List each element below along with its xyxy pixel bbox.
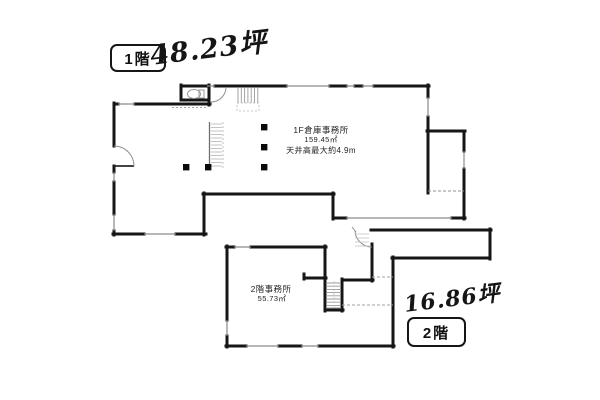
toilet-icon	[188, 90, 205, 99]
floor2-room-area: 55.73㎡	[258, 293, 287, 304]
mezzanine-hatch-icon	[210, 122, 224, 168]
entry-door-arc-icon	[352, 227, 372, 247]
stairs-icon-2f	[326, 281, 341, 309]
stairs-icon-1f	[237, 88, 259, 111]
toilet-door-arc-icon	[211, 87, 226, 102]
left-door-arc-icon	[114, 146, 134, 166]
floor2-badge-label: 2階	[423, 322, 450, 343]
floor-plan-drawing	[0, 0, 600, 400]
floor1-walls	[113, 85, 465, 235]
floor1-plan	[113, 85, 465, 235]
floor2-badge: 2階	[407, 317, 466, 347]
floor1-windows	[114, 86, 464, 234]
floor1-ceiling-note: 天井高最大約4.9m	[286, 145, 356, 156]
floor-plan-page: 1階 48.23坪 1F倉庫事務所 159.45㎡ 天井高最大約4.9m 2階事…	[0, 0, 600, 400]
floor1-room-area: 159.45㎡	[304, 134, 337, 145]
floor1-badge-label: 1階	[124, 48, 151, 69]
column-markers	[183, 124, 267, 170]
